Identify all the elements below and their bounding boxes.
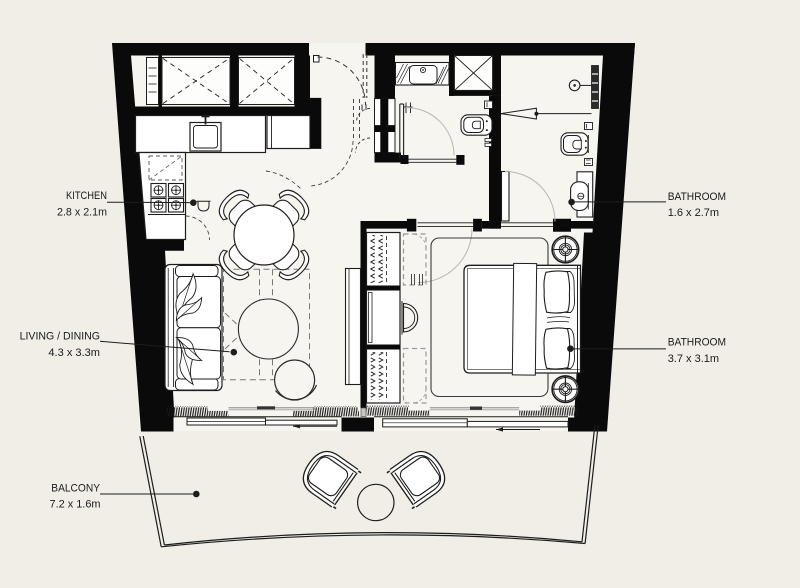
svg-text:2.8 x 2.1m: 2.8 x 2.1m [57, 207, 107, 219]
svg-text:BATHROOM: BATHROOM [668, 337, 726, 349]
svg-text:LIVING / DINING: LIVING / DINING [20, 330, 100, 342]
svg-text:3.7 x 3.1m: 3.7 x 3.1m [668, 353, 719, 365]
svg-text:7.2 x 1.6m: 7.2 x 1.6m [50, 499, 101, 511]
svg-text:4.3 x 3.3m: 4.3 x 3.3m [48, 347, 100, 359]
svg-text:BALCONY: BALCONY [51, 482, 100, 494]
svg-text:KITCHEN: KITCHEN [66, 190, 107, 202]
svg-text:1.6 x 2.7m: 1.6 x 2.7m [668, 207, 719, 219]
svg-text:BATHROOM: BATHROOM [668, 191, 726, 203]
